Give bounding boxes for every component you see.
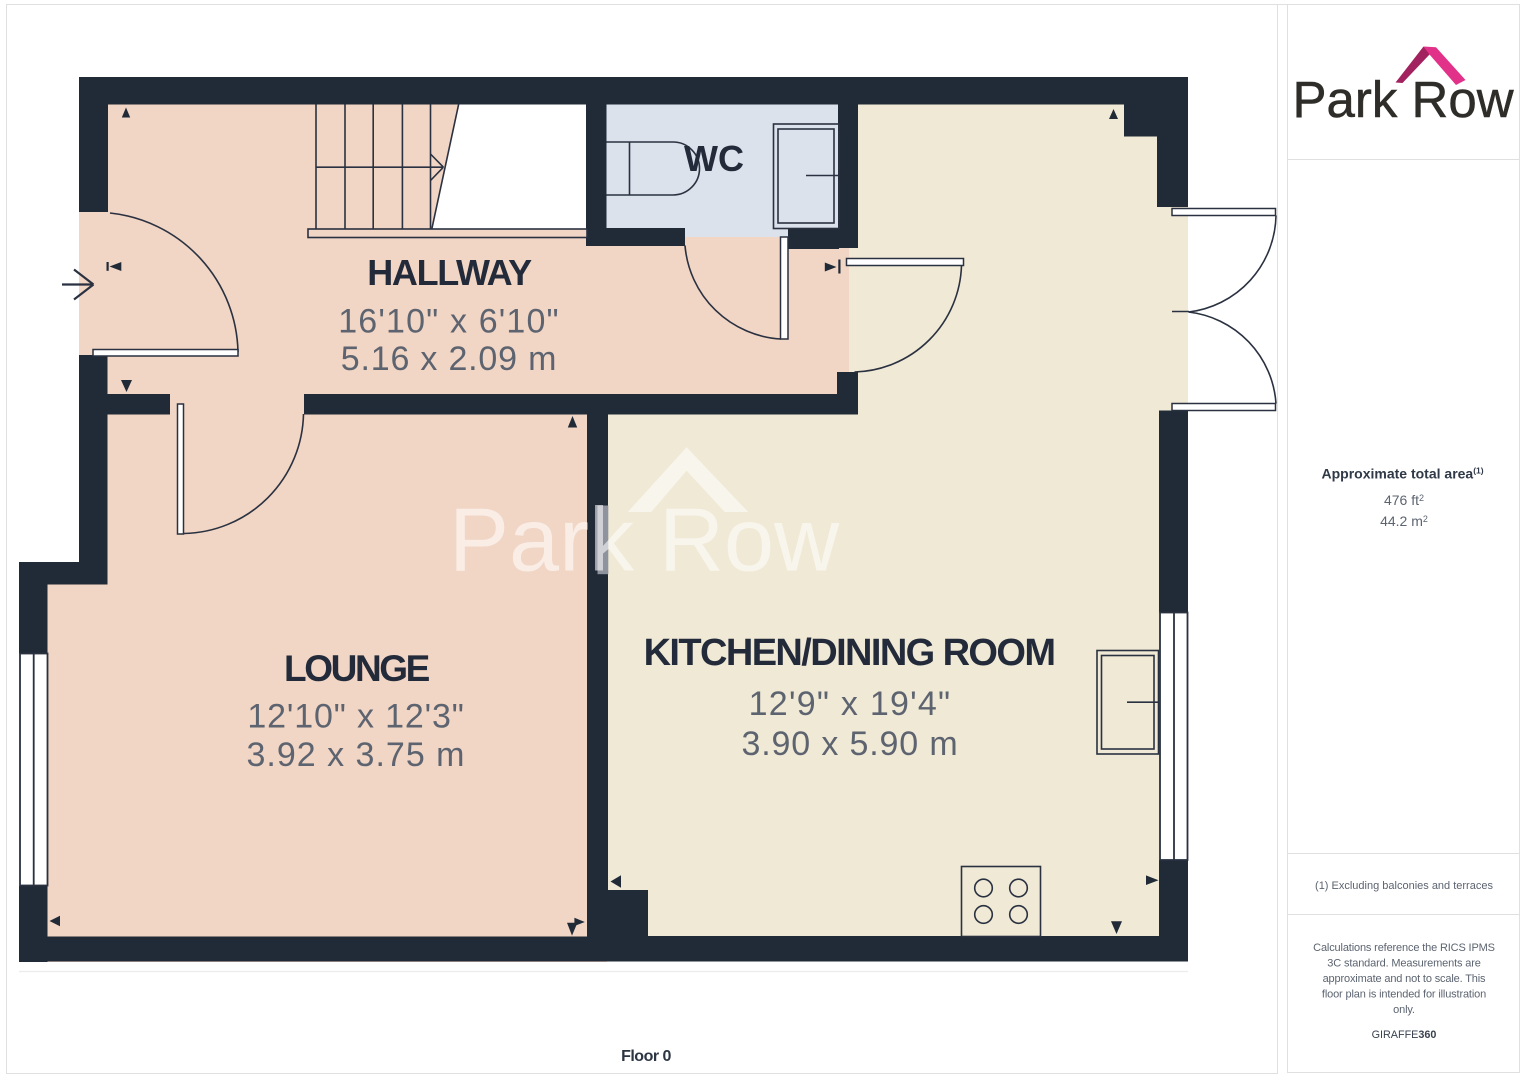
svg-text:5.16 x 2.09 m: 5.16 x 2.09 m [341, 340, 557, 378]
svg-text:3.90 x 5.90 m: 3.90 x 5.90 m [741, 725, 958, 763]
svg-text:LOUNGE: LOUNGE [284, 648, 430, 689]
svg-text:3.92 x 3.75 m: 3.92 x 3.75 m [246, 736, 465, 774]
svg-text:Floor 0: Floor 0 [621, 1048, 671, 1065]
svg-text:HALLWAY: HALLWAY [367, 252, 532, 293]
svg-text:12'9" x 19'4": 12'9" x 19'4" [749, 685, 952, 723]
svg-text:approximate and not to scale.: approximate and not to scale. This [1323, 973, 1486, 985]
svg-text:3C standard. Measurements are: 3C standard. Measurements are [1327, 958, 1480, 970]
svg-text:44.2 m2: 44.2 m2 [1380, 513, 1428, 529]
svg-text:16'10" x 6'10": 16'10" x 6'10" [338, 303, 559, 341]
svg-text:12'10" x 12'3": 12'10" x 12'3" [247, 698, 464, 736]
svg-text:Park Row: Park Row [449, 491, 840, 591]
svg-text:(1) Excluding balconies and te: (1) Excluding balconies and terraces [1315, 880, 1493, 892]
svg-text:GIRAFFE360: GIRAFFE360 [1372, 1029, 1437, 1041]
svg-text:only.: only. [1393, 1004, 1415, 1016]
svg-text:floor plan is intended for ill: floor plan is intended for illustration [1322, 989, 1486, 1001]
svg-text:Approximate total area(1): Approximate total area(1) [1322, 466, 1484, 482]
svg-text:Calculations reference the RIC: Calculations reference the RICS IPMS [1313, 942, 1495, 954]
svg-text:476 ft2: 476 ft2 [1384, 492, 1424, 508]
svg-text:WC: WC [684, 138, 744, 179]
svg-text:KITCHEN/DINING ROOM: KITCHEN/DINING ROOM [644, 632, 1055, 674]
